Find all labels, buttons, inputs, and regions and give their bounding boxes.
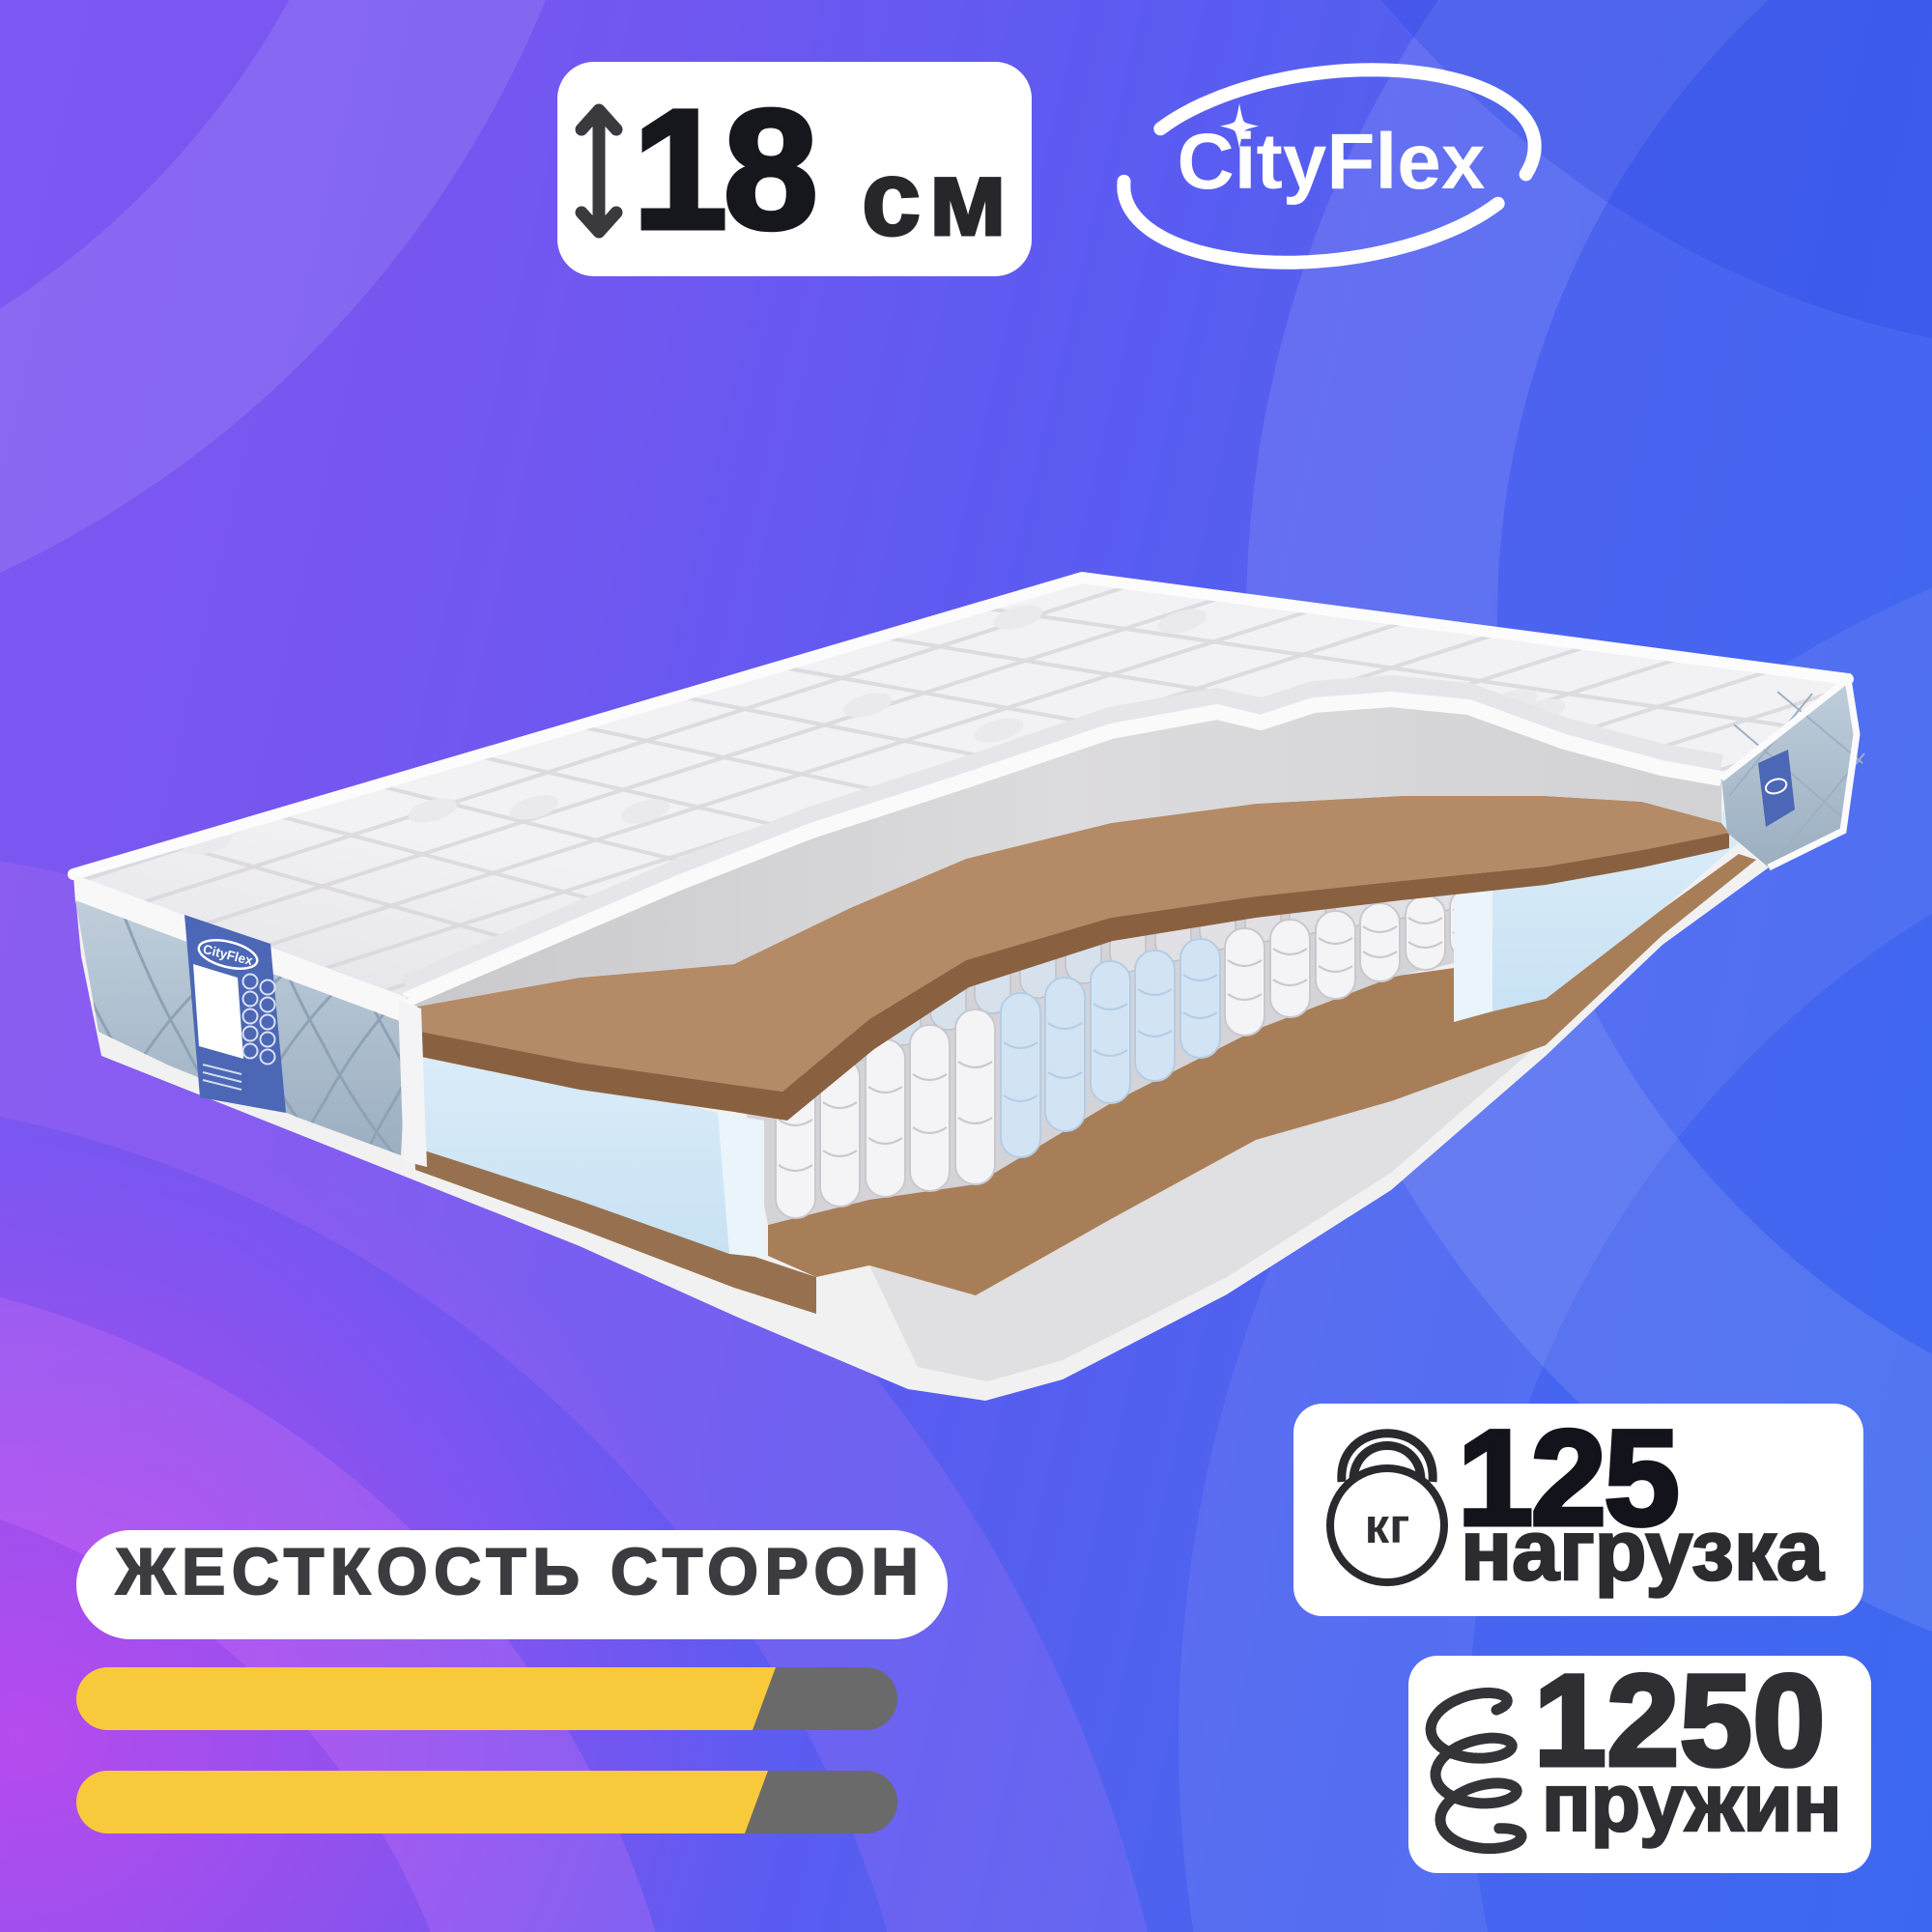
svg-text:CityFlex: CityFlex (1178, 118, 1486, 206)
svg-text:кг: кг (1365, 1498, 1410, 1553)
